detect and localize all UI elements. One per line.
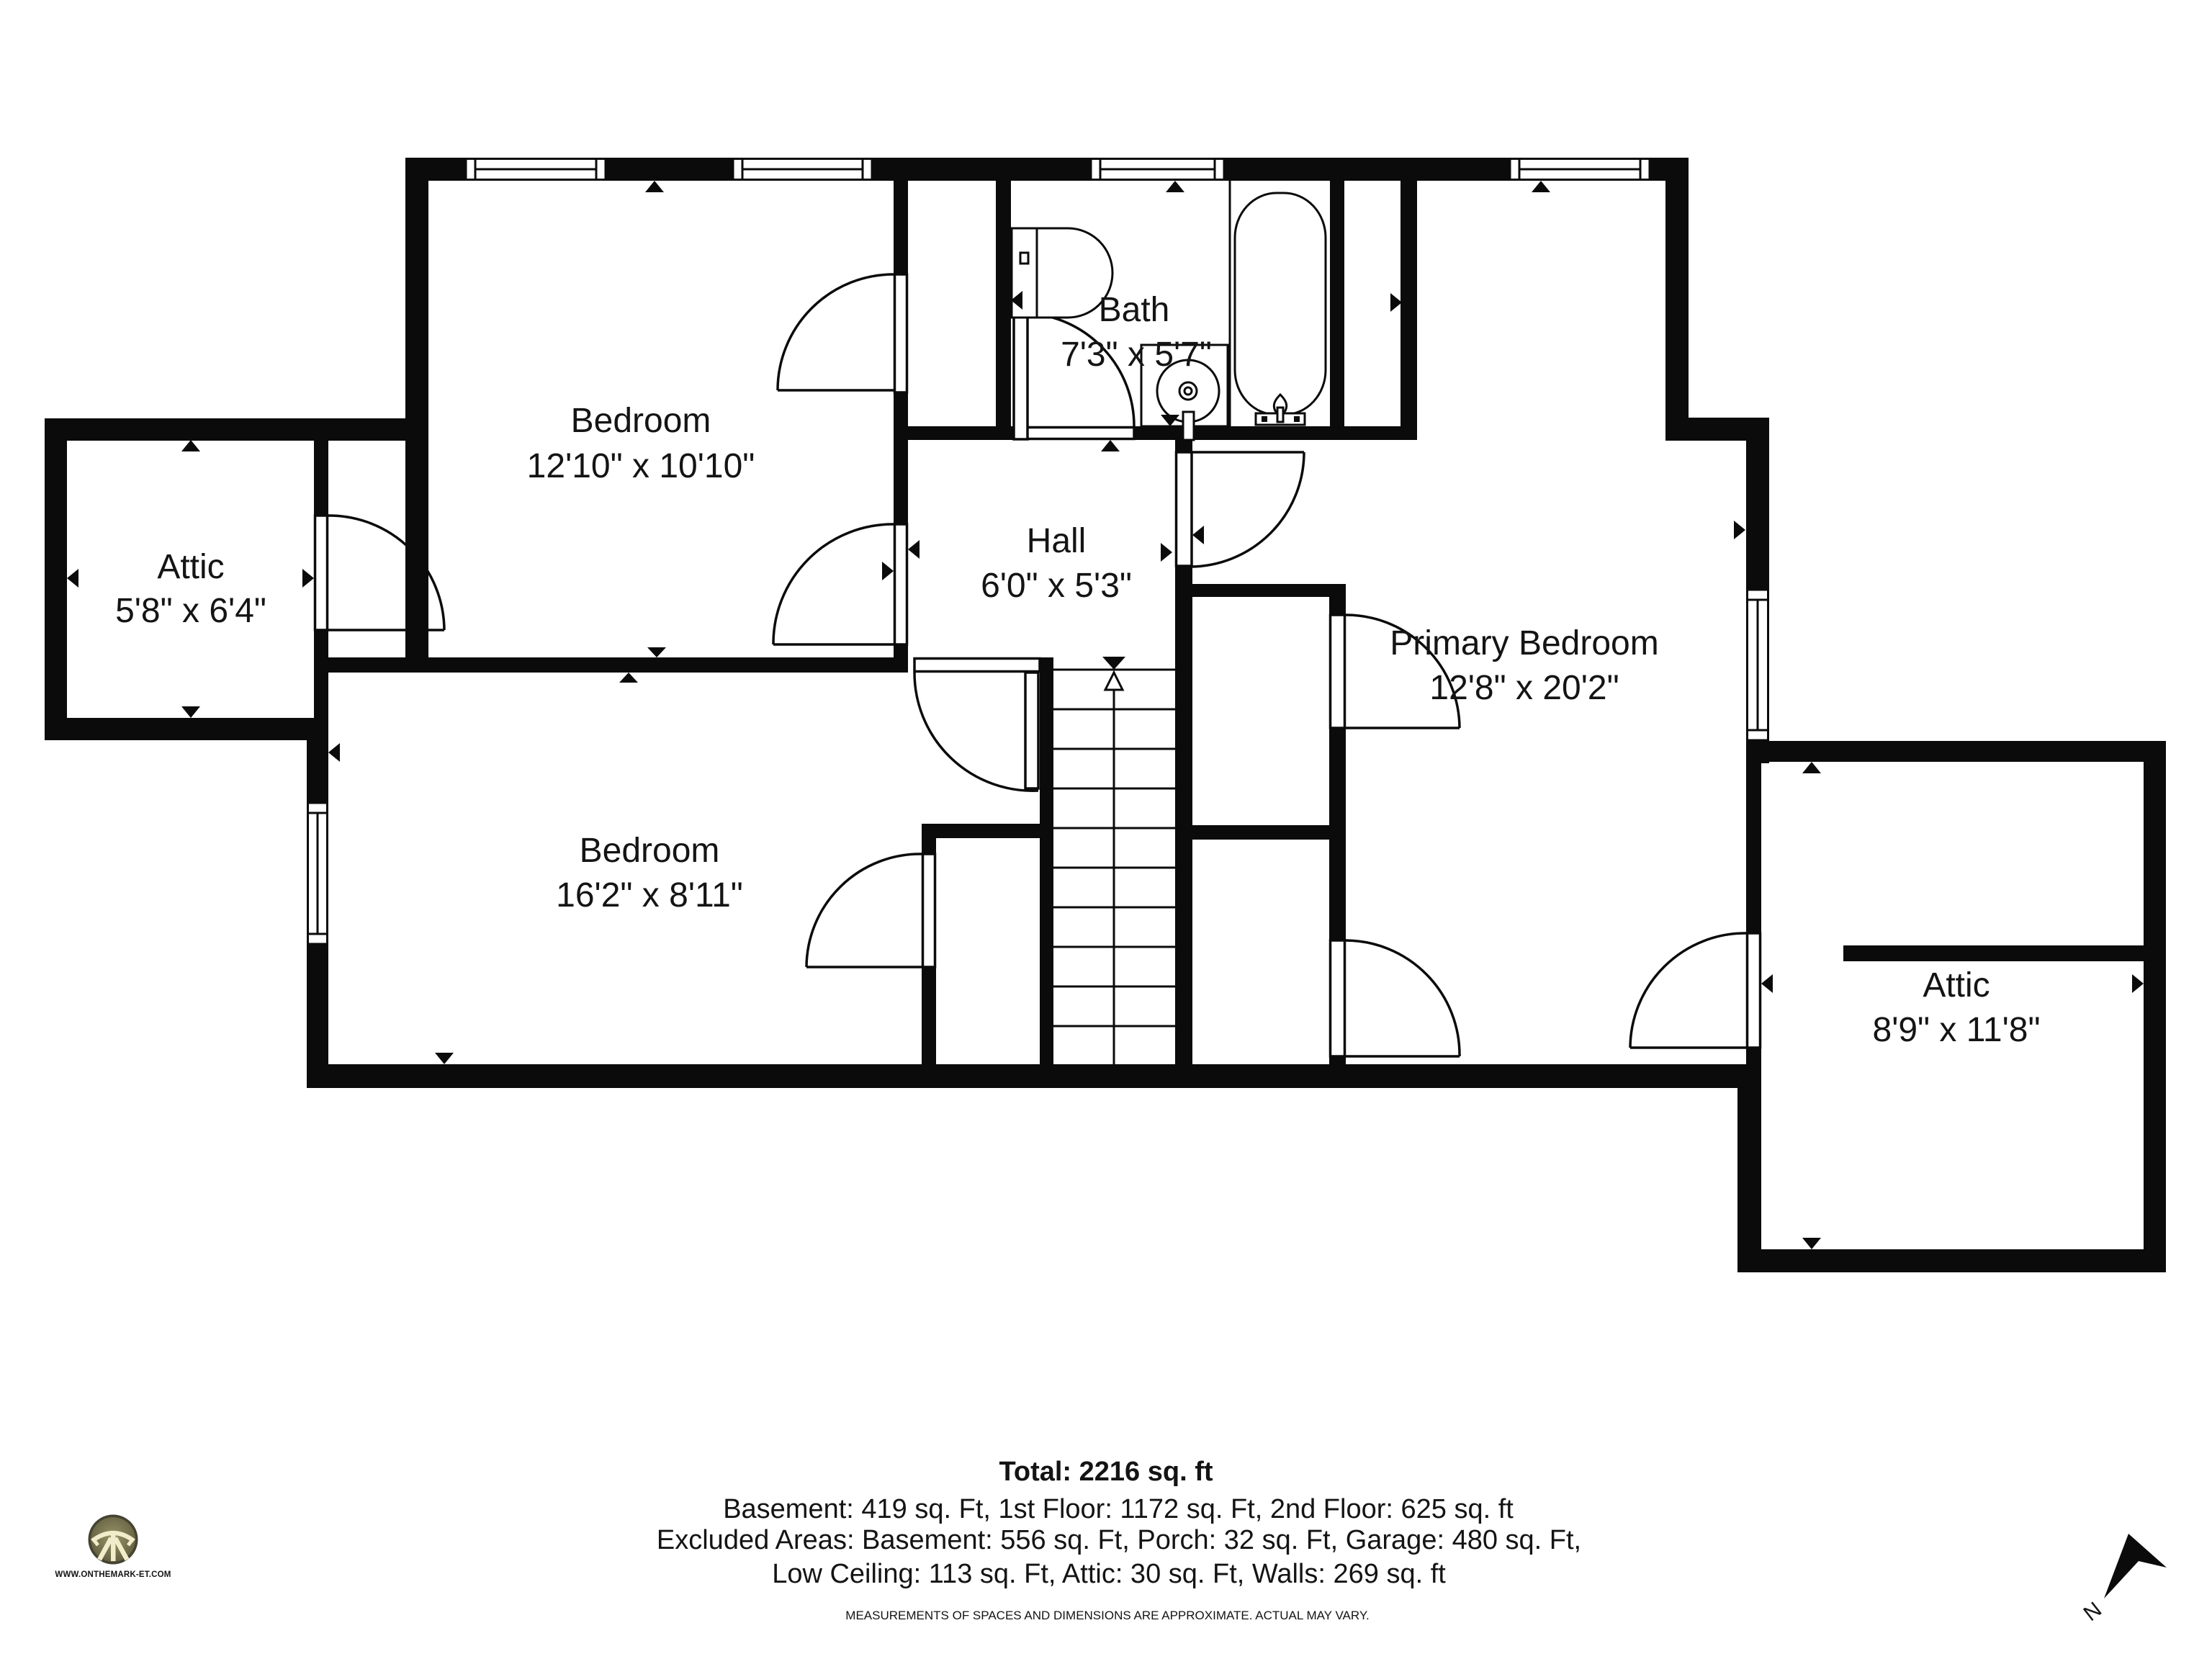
svg-text:5'8" x 6'4": 5'8" x 6'4" [115,592,266,630]
svg-text:Primary Bedroom: Primary Bedroom [1390,624,1658,662]
svg-text:8'9" x 11'8": 8'9" x 11'8" [1873,1011,2041,1049]
svg-text:WWW.ONTHEMARK-ET.COM: WWW.ONTHEMARK-ET.COM [55,1570,171,1579]
svg-text:Total: 2216 sq. ft: Total: 2216 sq. ft [999,1457,1213,1487]
svg-text:MEASUREMENTS OF SPACES AND DIM: MEASUREMENTS OF SPACES AND DIMENSIONS AR… [845,1609,1369,1622]
svg-text:Basement: 419 sq. Ft, 1st Floo: Basement: 419 sq. Ft, 1st Floor: 1172 sq… [723,1494,1514,1524]
svg-text:Bedroom: Bedroom [571,402,711,440]
svg-text:Attic: Attic [157,548,224,586]
svg-text:7'3" x 5'7": 7'3" x 5'7" [1061,336,1212,374]
svg-text:Attic: Attic [1923,966,1990,1004]
svg-text:Bath: Bath [1099,291,1170,329]
svg-text:Excluded Areas: Basement: 556: Excluded Areas: Basement: 556 sq. Ft, Po… [657,1525,1581,1555]
svg-text:12'10" x 10'10": 12'10" x 10'10" [527,447,755,485]
svg-text:12'8" x 20'2": 12'8" x 20'2" [1429,669,1619,707]
svg-text:6'0" x 5'3": 6'0" x 5'3" [981,567,1132,605]
svg-text:Bedroom: Bedroom [580,832,720,870]
svg-text:Low Ceiling: 113 sq. Ft, Attic: Low Ceiling: 113 sq. Ft, Attic: 30 sq. F… [772,1559,1446,1589]
svg-text:16'2" x 8'11": 16'2" x 8'11" [556,876,743,914]
svg-text:Hall: Hall [1027,522,1087,560]
